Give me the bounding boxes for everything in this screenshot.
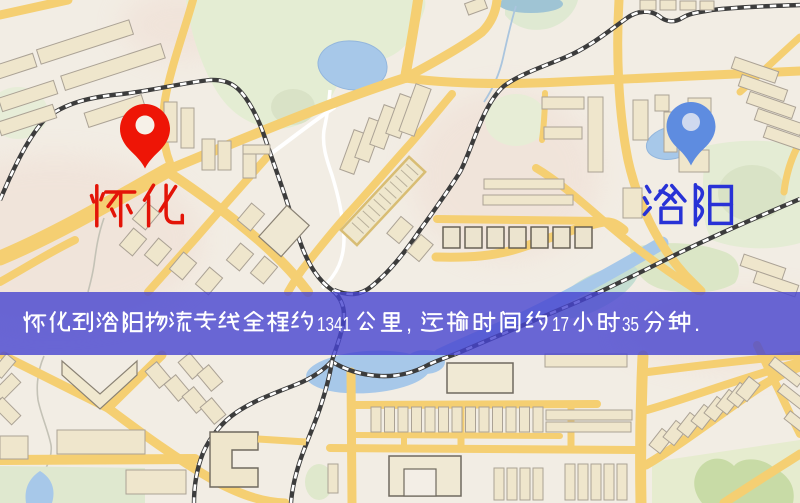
svg-text:.: .: [694, 311, 700, 336]
svg-text:,: ,: [406, 311, 412, 336]
svg-text:17: 17: [552, 314, 569, 336]
svg-text:1341: 1341: [317, 314, 351, 336]
svg-text:35: 35: [622, 314, 639, 336]
